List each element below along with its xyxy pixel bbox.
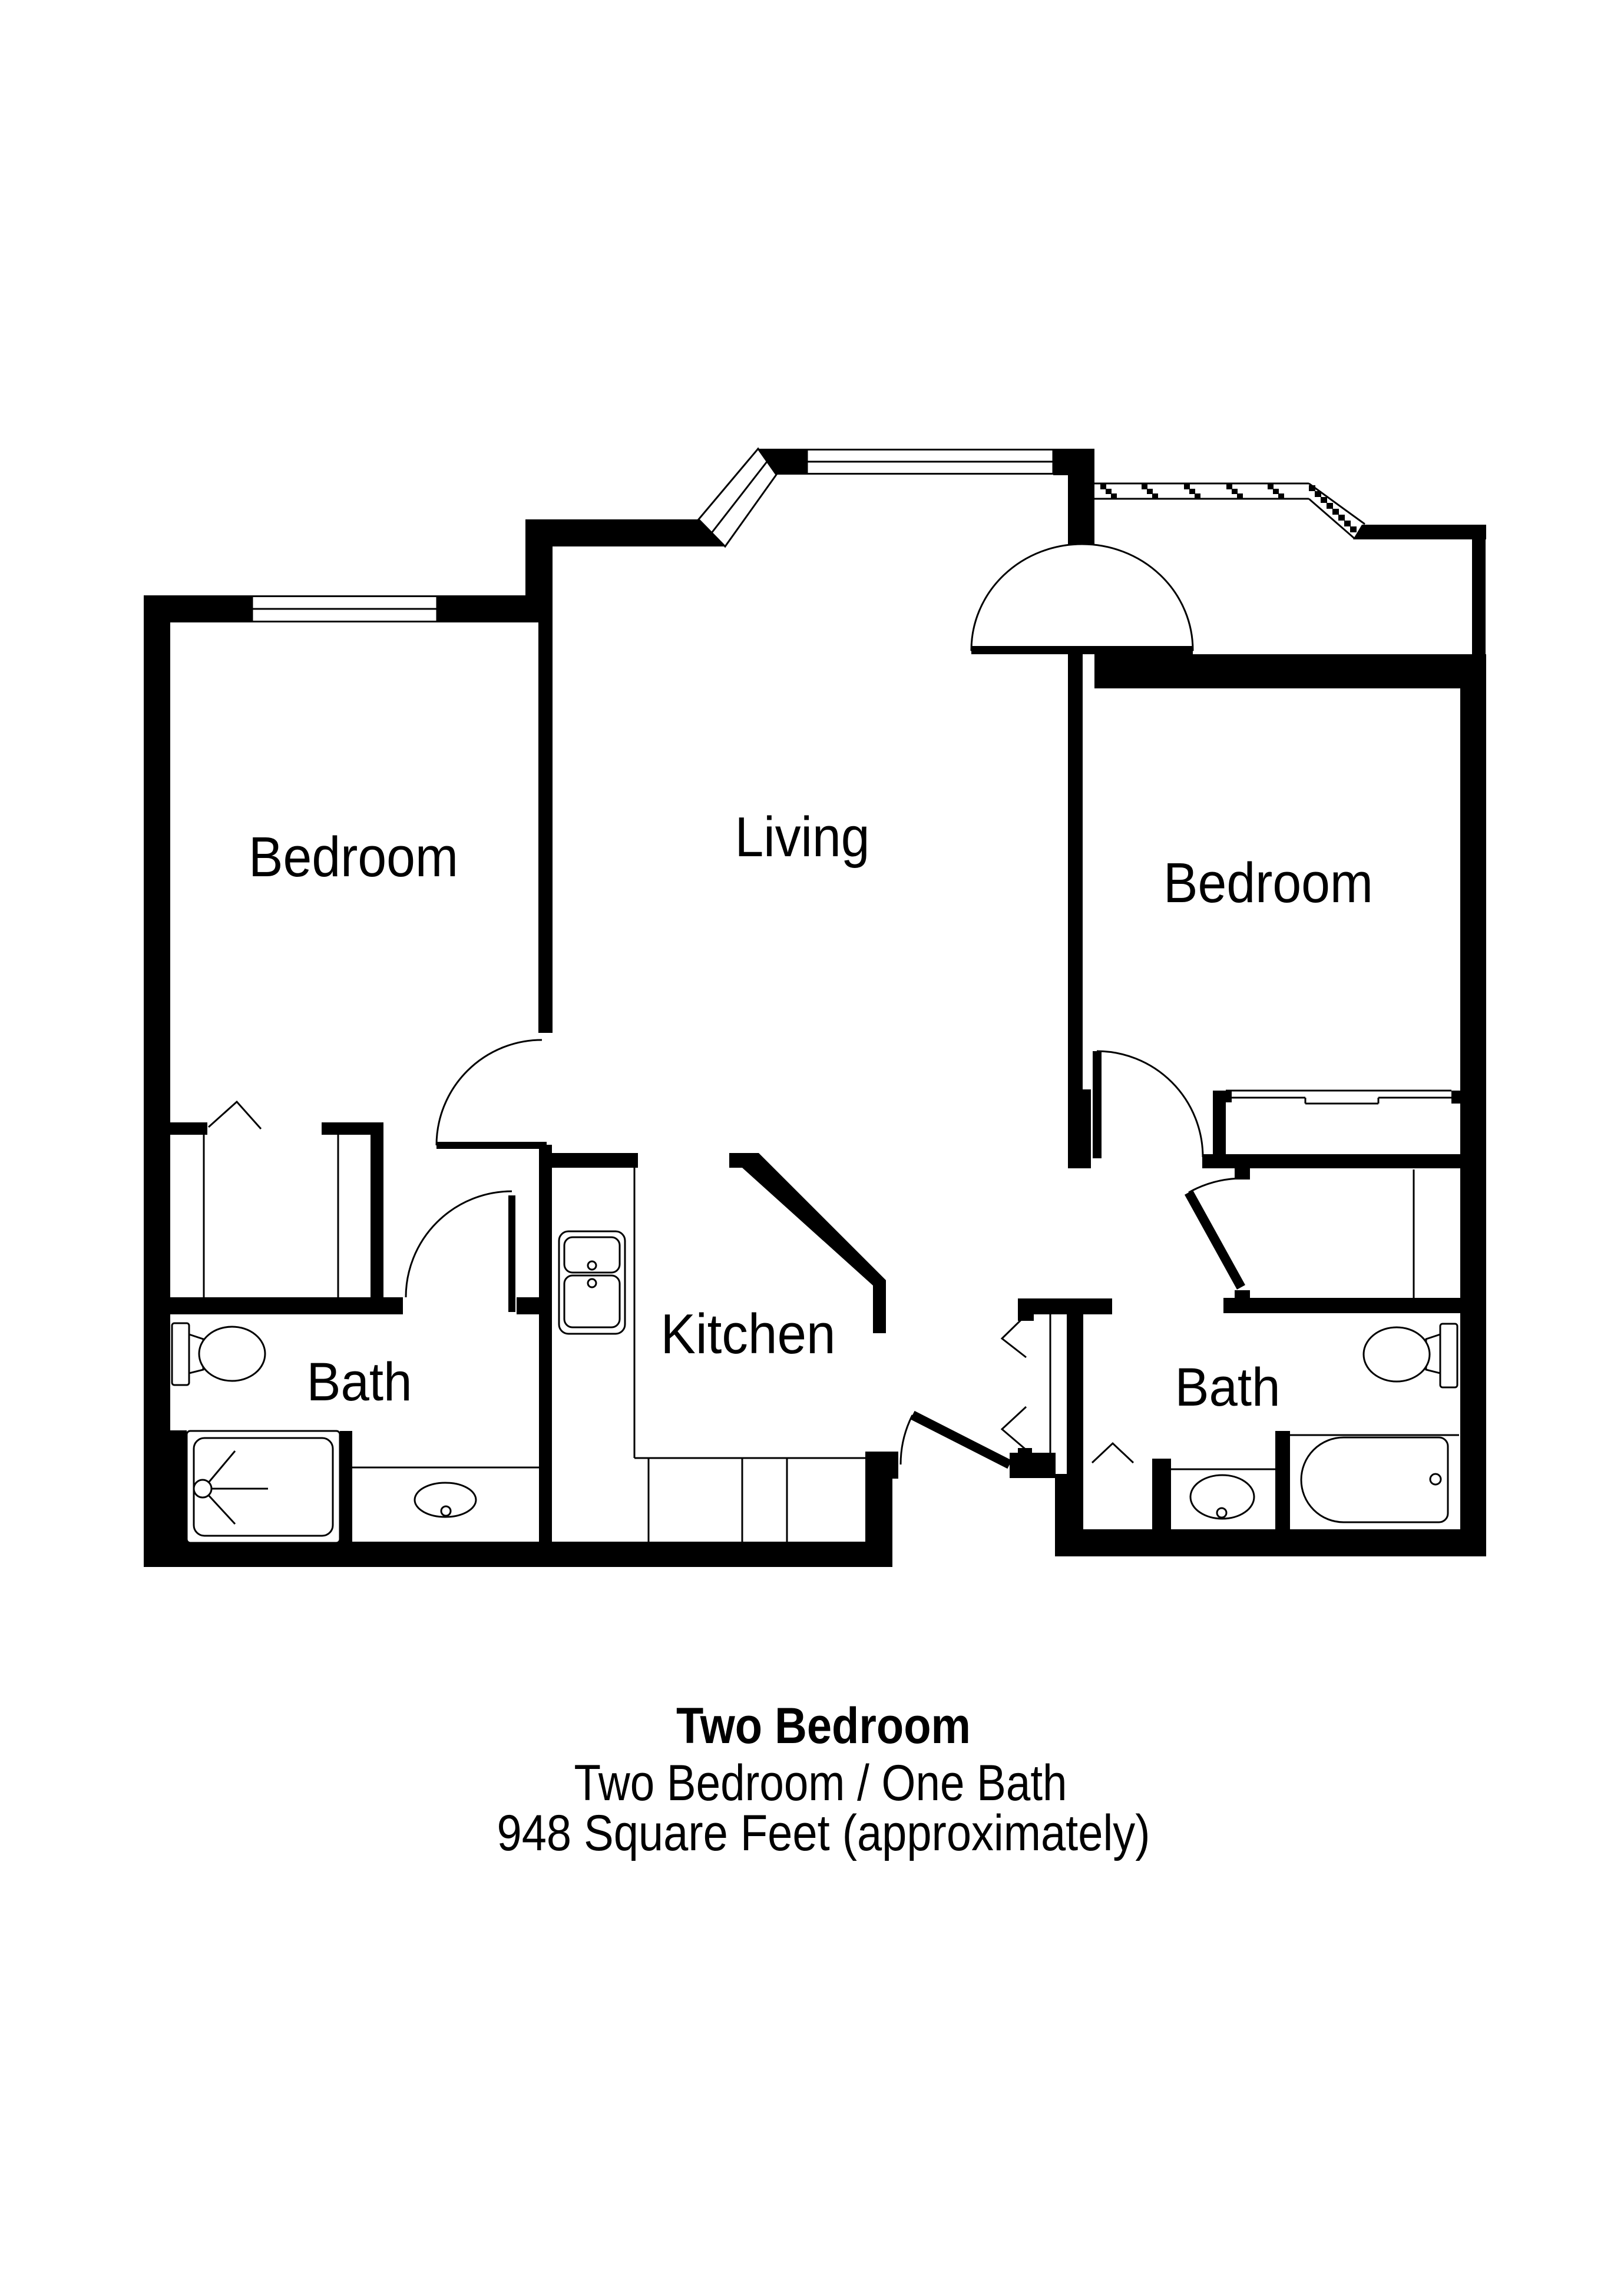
svg-text:Two Bedroom / One Bath: Two Bedroom / One Bath <box>574 1755 1067 1811</box>
svg-text:Bath: Bath <box>307 1352 412 1412</box>
svg-text:Bedroom: Bedroom <box>1163 852 1373 915</box>
svg-text:Living: Living <box>735 806 870 869</box>
svg-text:948 Square Feet (approximately: 948 Square Feet (approximately) <box>497 1805 1150 1861</box>
svg-text:Two Bedroom: Two Bedroom <box>676 1698 971 1754</box>
svg-text:Kitchen: Kitchen <box>661 1303 836 1366</box>
svg-text:Bedroom: Bedroom <box>249 826 458 889</box>
svg-text:Bath: Bath <box>1175 1357 1281 1417</box>
